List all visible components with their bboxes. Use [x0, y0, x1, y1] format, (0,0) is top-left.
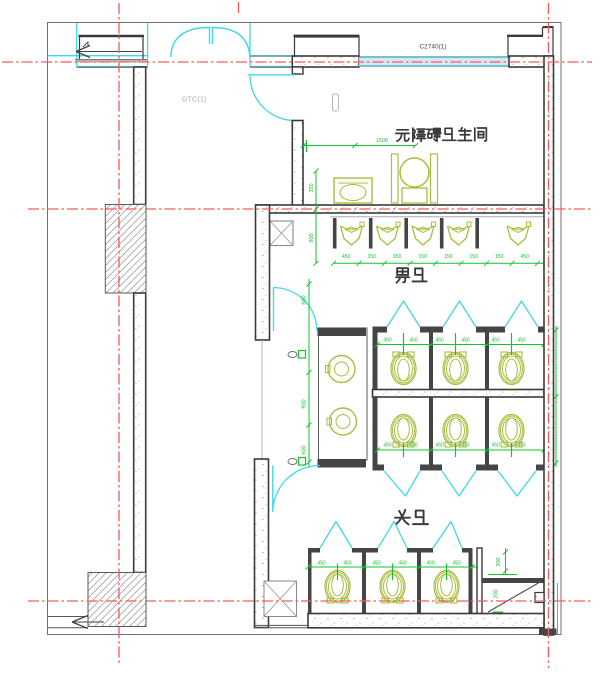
svg-text:450: 450: [342, 254, 351, 260]
svg-text:C2740(1): C2740(1): [419, 44, 446, 51]
svg-text:450: 450: [372, 561, 381, 567]
svg-text:450: 450: [517, 443, 526, 449]
svg-text:150: 150: [495, 254, 504, 260]
svg-text:450: 450: [383, 338, 392, 344]
svg-text:600: 600: [302, 295, 308, 304]
svg-text:450: 450: [426, 561, 435, 567]
svg-text:900: 900: [302, 399, 308, 408]
svg-text:450: 450: [343, 561, 352, 567]
svg-text:1500: 1500: [376, 138, 388, 144]
svg-text:150: 150: [368, 254, 377, 260]
svg-text:450: 450: [491, 443, 500, 449]
svg-text:450: 450: [409, 338, 418, 344]
svg-text:600: 600: [302, 445, 308, 454]
svg-text:450: 450: [398, 561, 407, 567]
svg-text:450: 450: [383, 443, 392, 449]
svg-text:450: 450: [521, 254, 530, 260]
svg-text:450: 450: [461, 443, 470, 449]
svg-text:450: 450: [409, 443, 418, 449]
svg-text:150: 150: [393, 254, 402, 260]
svg-text:450: 450: [491, 338, 500, 344]
svg-text:450: 450: [461, 338, 470, 344]
svg-text:450: 450: [317, 561, 326, 567]
svg-text:450: 450: [435, 338, 444, 344]
svg-text:150: 150: [470, 254, 479, 260]
svg-text:GTC(1): GTC(1): [182, 95, 208, 104]
svg-text:450: 450: [452, 561, 461, 567]
svg-text:450: 450: [435, 443, 444, 449]
svg-text:300: 300: [496, 557, 502, 566]
svg-text:150: 150: [419, 254, 428, 260]
svg-text:200: 200: [494, 589, 500, 598]
svg-text:150: 150: [444, 254, 453, 260]
svg-text:350: 350: [309, 183, 315, 192]
svg-text:900: 900: [309, 233, 315, 242]
svg-text:450: 450: [517, 338, 526, 344]
